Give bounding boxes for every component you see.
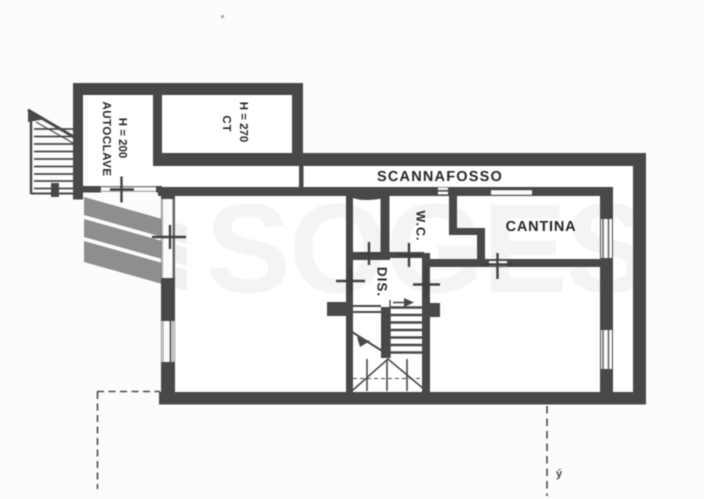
svg-text:CANTINA: CANTINA xyxy=(506,219,577,235)
svg-text:CT: CT xyxy=(220,115,232,132)
svg-text:AUTOCLAVE: AUTOCLAVE xyxy=(100,102,112,177)
svg-text:W.C.: W.C. xyxy=(414,210,428,241)
svg-text:H = 270: H = 270 xyxy=(237,102,249,143)
svg-text:SCANNAFOSSO: SCANNAFOSSO xyxy=(377,169,503,185)
svg-text:H = 200: H = 200 xyxy=(116,118,128,159)
svg-text:DIS.: DIS. xyxy=(374,267,389,297)
svg-text:ý: ý xyxy=(556,468,563,480)
